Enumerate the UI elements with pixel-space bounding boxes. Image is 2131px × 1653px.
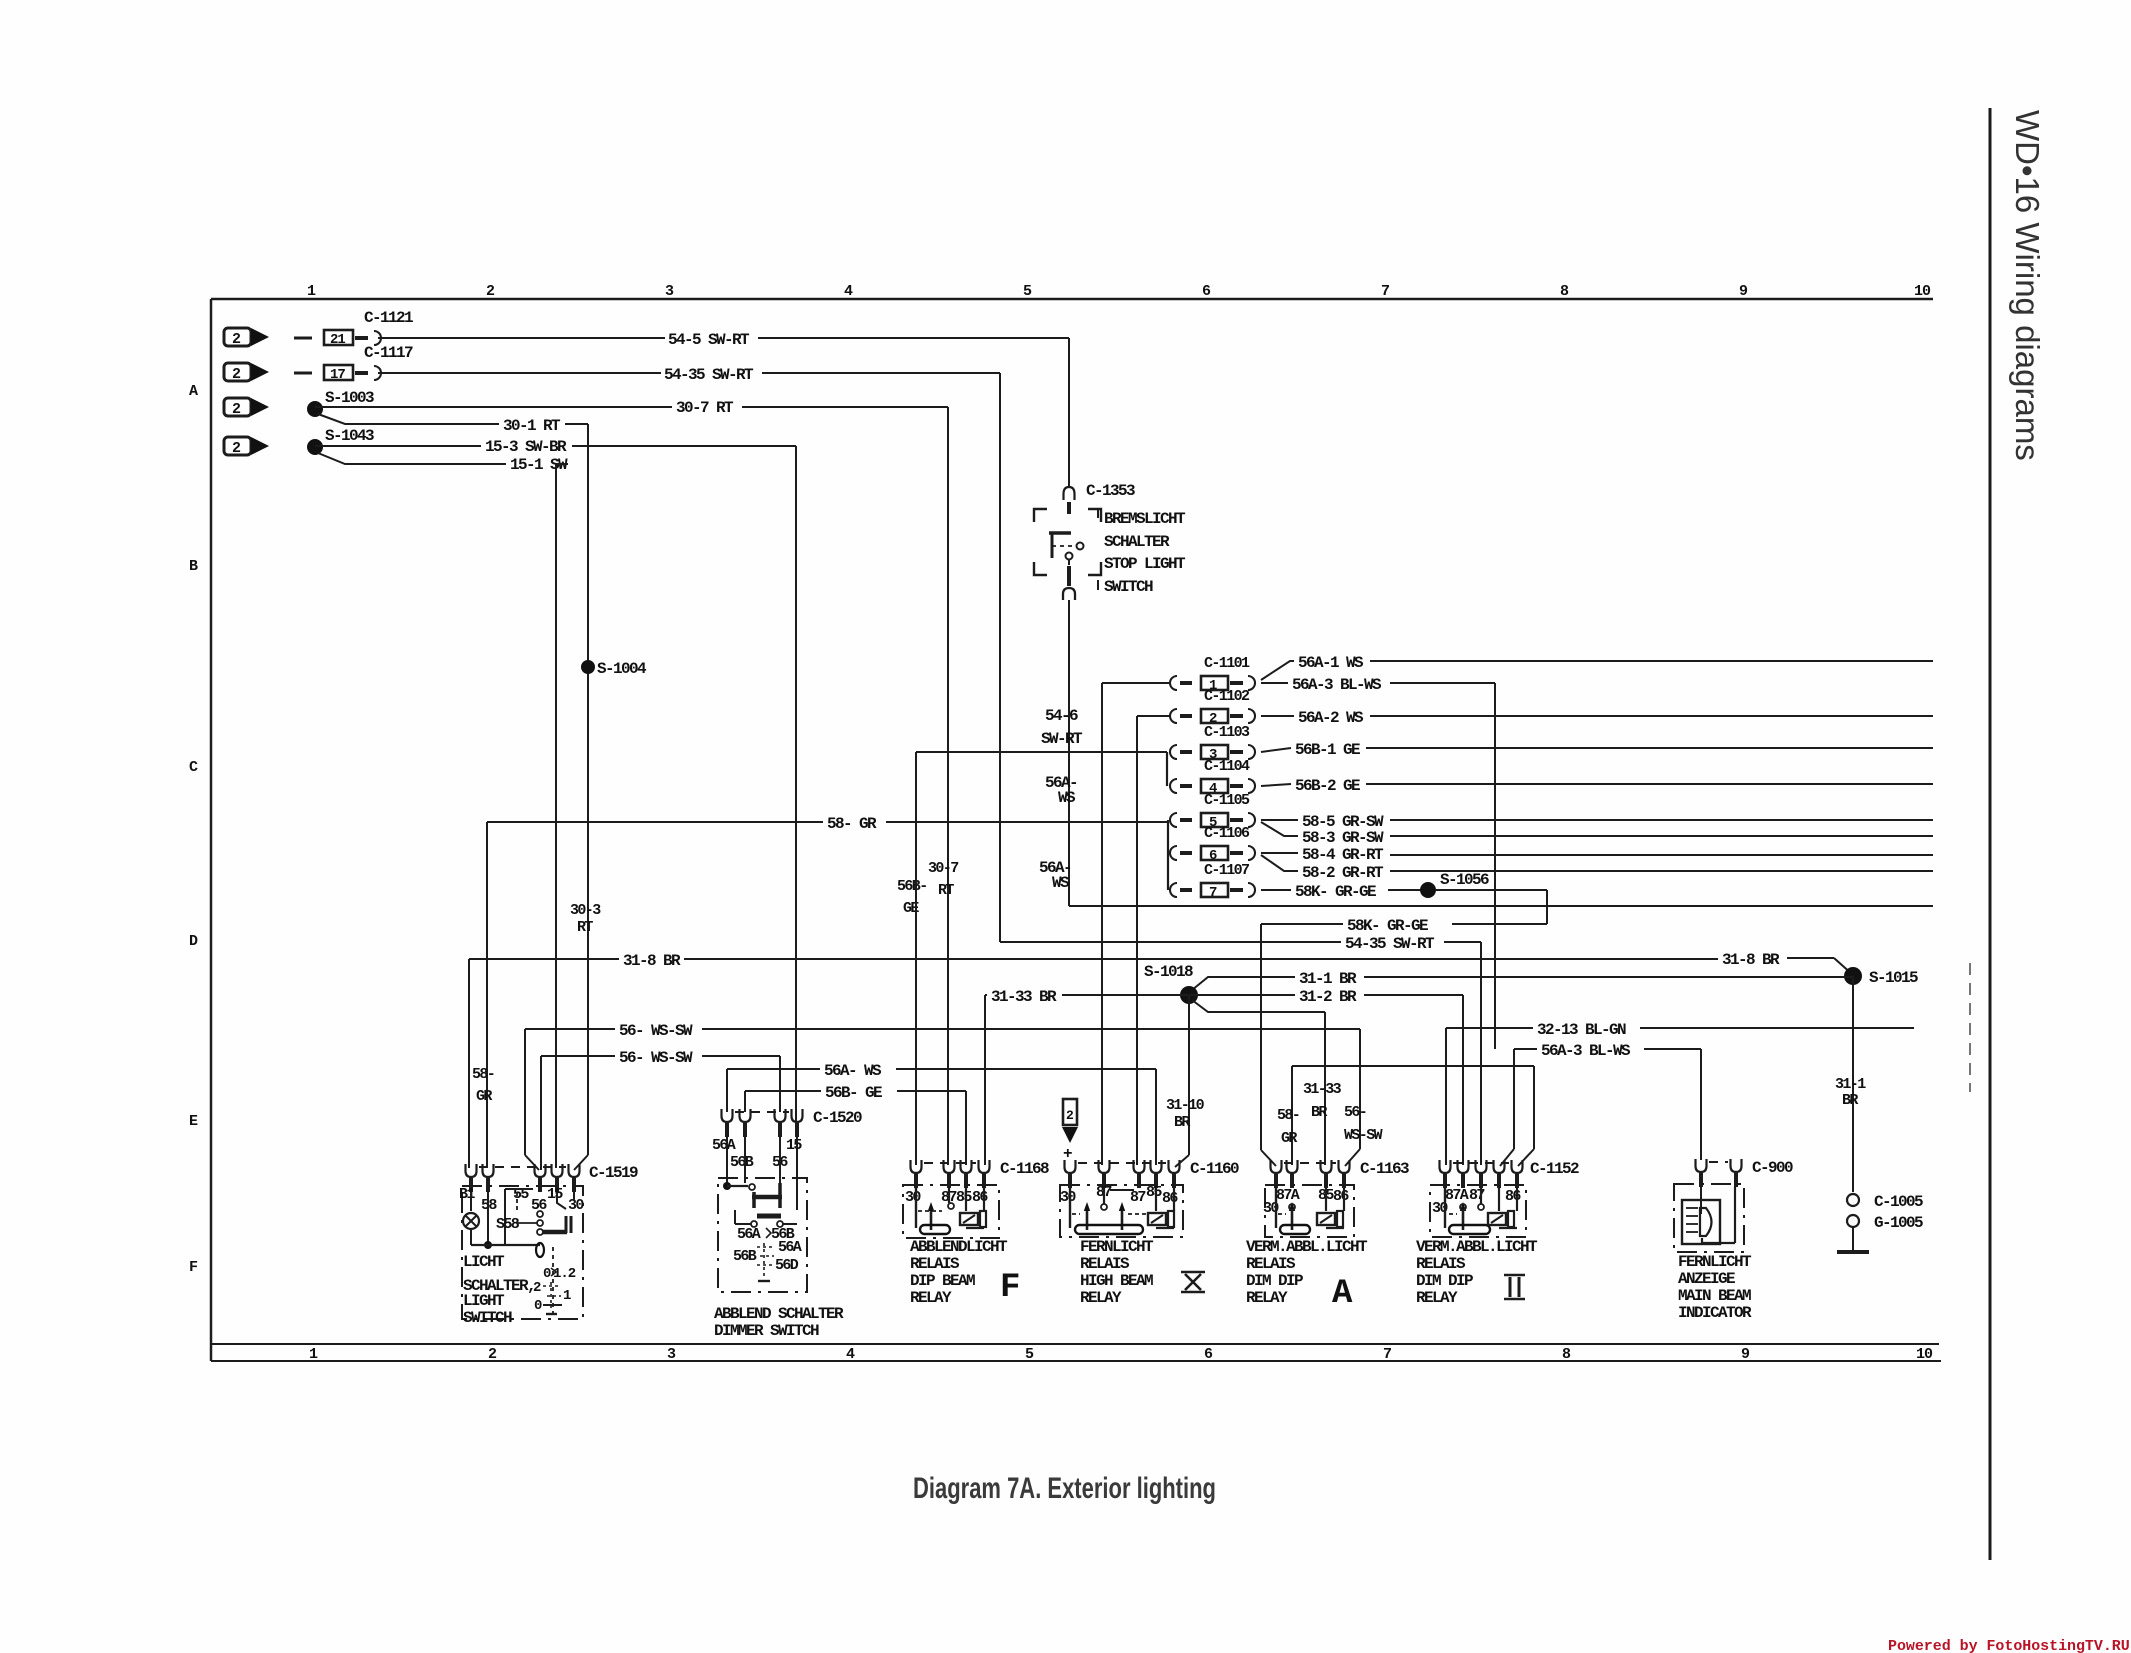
svg-text:31-33 BR: 31-33 BR bbox=[991, 988, 1057, 1006]
svg-text:Powered by FotoHostingTV.RU: Powered by FotoHostingTV.RU bbox=[1888, 1638, 2130, 1653]
svg-text:SWITCH: SWITCH bbox=[1104, 578, 1153, 596]
svg-text:86: 86 bbox=[1505, 1188, 1521, 1205]
svg-text:2: 2 bbox=[486, 283, 495, 300]
svg-text:32-13 BL-GN: 32-13 BL-GN bbox=[1537, 1021, 1626, 1039]
svg-text:ABBLEND SCHALTER: ABBLEND SCHALTER bbox=[714, 1305, 844, 1323]
svg-text:S-1056: S-1056 bbox=[1440, 871, 1489, 889]
svg-text:ANZEIGE: ANZEIGE bbox=[1678, 1270, 1735, 1288]
svg-text:WS-SW: WS-SW bbox=[1344, 1127, 1383, 1144]
svg-text:30-7 RT: 30-7 RT bbox=[676, 399, 734, 417]
svg-text:31-10: 31-10 bbox=[1166, 1097, 1205, 1114]
svg-text:58K- GR-GE: 58K- GR-GE bbox=[1347, 917, 1428, 935]
svg-text:BR: BR bbox=[1311, 1104, 1327, 1121]
svg-text:56B-: 56B- bbox=[897, 878, 927, 895]
svg-text:C-1117: C-1117 bbox=[364, 344, 413, 362]
svg-text:56- WS-SW: 56- WS-SW bbox=[619, 1049, 693, 1067]
svg-text:DIM DIP: DIM DIP bbox=[1246, 1272, 1303, 1290]
svg-text:A: A bbox=[189, 383, 198, 400]
svg-text:C-1005: C-1005 bbox=[1874, 1193, 1923, 1211]
svg-text:RELAY: RELAY bbox=[1416, 1289, 1458, 1307]
svg-text:MAIN BEAM: MAIN BEAM bbox=[1678, 1287, 1751, 1305]
svg-text:SW-RT: SW-RT bbox=[1041, 730, 1083, 748]
svg-text:6: 6 bbox=[1204, 1346, 1213, 1363]
svg-text:8: 8 bbox=[1562, 1346, 1571, 1363]
svg-text:56B-1 GE: 56B-1 GE bbox=[1295, 741, 1360, 759]
svg-text:58- GR: 58- GR bbox=[827, 815, 877, 833]
svg-text:LICHT: LICHT bbox=[463, 1253, 505, 1271]
svg-text:C-1520: C-1520 bbox=[813, 1109, 862, 1127]
svg-text:85: 85 bbox=[956, 1189, 972, 1206]
svg-text:4: 4 bbox=[844, 283, 853, 300]
svg-text:RELAIS: RELAIS bbox=[1246, 1255, 1296, 1273]
svg-text:7: 7 bbox=[1209, 885, 1217, 901]
svg-text:SCHALTER: SCHALTER bbox=[1104, 533, 1170, 551]
svg-text:1: 1 bbox=[563, 1288, 571, 1304]
svg-text:2: 2 bbox=[232, 401, 241, 418]
svg-text:GR: GR bbox=[1281, 1130, 1297, 1147]
svg-text:58K- GR-GE: 58K- GR-GE bbox=[1295, 883, 1376, 901]
svg-text:LIGHT: LIGHT bbox=[463, 1292, 505, 1310]
svg-text:56-: 56- bbox=[1344, 1104, 1366, 1121]
svg-text:31-2 BR: 31-2 BR bbox=[1299, 988, 1357, 1006]
svg-text:31-33: 31-33 bbox=[1303, 1081, 1342, 1098]
svg-text:56B-2 GE: 56B-2 GE bbox=[1295, 777, 1360, 795]
svg-text:VERM.ABBL.LICHT: VERM.ABBL.LICHT bbox=[1246, 1238, 1368, 1256]
svg-text:RT: RT bbox=[938, 882, 954, 899]
svg-text:87A: 87A bbox=[1276, 1187, 1300, 1204]
svg-text:E: E bbox=[189, 1113, 198, 1130]
svg-text:54-5 SW-RT: 54-5 SW-RT bbox=[668, 331, 750, 349]
svg-text:WS: WS bbox=[1052, 874, 1070, 892]
svg-text:C-900: C-900 bbox=[1752, 1159, 1793, 1177]
svg-text:58-2 GR-RT: 58-2 GR-RT bbox=[1302, 864, 1384, 882]
svg-text:58-3 GR-SW: 58-3 GR-SW bbox=[1302, 829, 1384, 847]
svg-text:C-1104: C-1104 bbox=[1204, 758, 1250, 775]
svg-text:1: 1 bbox=[307, 283, 316, 300]
svg-text:GR: GR bbox=[476, 1088, 492, 1105]
svg-text:S58: S58 bbox=[496, 1216, 520, 1233]
svg-text:31-8 BR: 31-8 BR bbox=[1722, 951, 1780, 969]
svg-text:86: 86 bbox=[1162, 1190, 1178, 1207]
svg-text:0: 0 bbox=[543, 1266, 551, 1282]
svg-text:56A: 56A bbox=[778, 1239, 802, 1256]
svg-text:30-1 RT: 30-1 RT bbox=[503, 417, 561, 435]
svg-text:C-1121: C-1121 bbox=[364, 309, 413, 327]
svg-text:STOP LIGHT: STOP LIGHT bbox=[1104, 555, 1186, 573]
svg-text:C-1105: C-1105 bbox=[1204, 792, 1250, 809]
svg-text:31-1 BR: 31-1 BR bbox=[1299, 970, 1357, 988]
svg-text:5: 5 bbox=[1025, 1346, 1034, 1363]
svg-text:C-1168: C-1168 bbox=[1000, 1160, 1049, 1178]
svg-text:56A: 56A bbox=[712, 1137, 736, 1154]
svg-text:C-1101: C-1101 bbox=[1204, 655, 1250, 672]
svg-text:B1: B1 bbox=[459, 1186, 475, 1203]
svg-text:56B- GE: 56B- GE bbox=[825, 1084, 882, 1102]
svg-text:5: 5 bbox=[1023, 283, 1032, 300]
svg-text:8: 8 bbox=[1560, 283, 1569, 300]
svg-text:B: B bbox=[189, 558, 198, 575]
svg-text:56A: 56A bbox=[737, 1226, 761, 1243]
svg-text:58-4 GR-RT: 58-4 GR-RT bbox=[1302, 846, 1384, 864]
svg-text:56B: 56B bbox=[733, 1248, 757, 1265]
svg-text:9: 9 bbox=[1739, 283, 1748, 300]
svg-text:S-1015: S-1015 bbox=[1869, 969, 1918, 987]
svg-text:RELAY: RELAY bbox=[1080, 1289, 1122, 1307]
svg-text:C-1102: C-1102 bbox=[1204, 688, 1250, 705]
svg-text:BR: BR bbox=[1842, 1092, 1858, 1109]
svg-text:FERNLICHT: FERNLICHT bbox=[1678, 1253, 1752, 1271]
svg-text:C-1106: C-1106 bbox=[1204, 825, 1250, 842]
svg-text:1: 1 bbox=[309, 1346, 318, 1363]
svg-text:A: A bbox=[1332, 1275, 1353, 1313]
svg-text:54-35 SW-RT: 54-35 SW-RT bbox=[1345, 935, 1435, 953]
svg-text:FERNLICHT: FERNLICHT bbox=[1080, 1238, 1154, 1256]
svg-text:C: C bbox=[189, 759, 198, 776]
svg-text:56A- WS: 56A- WS bbox=[824, 1062, 882, 1080]
svg-text:RELAIS: RELAIS bbox=[1416, 1255, 1466, 1273]
svg-text:7: 7 bbox=[1381, 283, 1389, 300]
svg-text:87: 87 bbox=[1130, 1189, 1145, 1206]
svg-text:HIGH BEAM: HIGH BEAM bbox=[1080, 1272, 1153, 1290]
svg-text:C-1163: C-1163 bbox=[1360, 1160, 1409, 1178]
svg-text:54-6: 54-6 bbox=[1045, 707, 1078, 725]
svg-text:DIMMER SWITCH: DIMMER SWITCH bbox=[714, 1322, 819, 1340]
svg-text:RELAIS: RELAIS bbox=[910, 1255, 960, 1273]
svg-text:15-3 SW-BR: 15-3 SW-BR bbox=[485, 438, 567, 456]
svg-text:WD•16 Wiring diagrams: WD•16 Wiring diagrams bbox=[2009, 110, 2046, 461]
svg-text:56B: 56B bbox=[730, 1154, 754, 1171]
svg-text:2: 2 bbox=[1066, 1108, 1074, 1123]
svg-text:C-1107: C-1107 bbox=[1204, 862, 1249, 879]
svg-text:56A-2 WS: 56A-2 WS bbox=[1298, 709, 1364, 727]
svg-text:F: F bbox=[1000, 1269, 1020, 1307]
svg-text:INDICATOR: INDICATOR bbox=[1678, 1304, 1752, 1322]
svg-text:C-1519: C-1519 bbox=[589, 1164, 638, 1182]
svg-text:RELAY: RELAY bbox=[910, 1289, 952, 1307]
svg-text:1.2: 1.2 bbox=[553, 1266, 576, 1282]
svg-text:85: 85 bbox=[1146, 1184, 1162, 1201]
svg-text:10: 10 bbox=[1914, 283, 1931, 300]
svg-text:31-8 BR: 31-8 BR bbox=[623, 952, 681, 970]
svg-text:2: 2 bbox=[488, 1346, 497, 1363]
svg-text:4: 4 bbox=[846, 1346, 855, 1363]
svg-text:C-1160: C-1160 bbox=[1190, 1160, 1239, 1178]
svg-text:RT: RT bbox=[577, 919, 593, 936]
svg-text:56- WS-SW: 56- WS-SW bbox=[619, 1022, 693, 1040]
svg-text:S-1004: S-1004 bbox=[597, 660, 647, 678]
svg-text:9: 9 bbox=[1741, 1346, 1750, 1363]
svg-text:30-3: 30-3 bbox=[570, 902, 601, 919]
svg-text:C-1152: C-1152 bbox=[1530, 1160, 1579, 1178]
svg-text:C-1353: C-1353 bbox=[1086, 482, 1135, 500]
svg-text:30-7: 30-7 bbox=[928, 860, 958, 877]
svg-text:56A-3 BL-WS: 56A-3 BL-WS bbox=[1541, 1042, 1631, 1060]
svg-text:3: 3 bbox=[665, 283, 674, 300]
svg-text:DIP BEAM: DIP BEAM bbox=[910, 1272, 975, 1290]
svg-text:58-: 58- bbox=[1277, 1107, 1299, 1124]
svg-text:2: 2 bbox=[232, 440, 241, 457]
svg-text:RELAIS: RELAIS bbox=[1080, 1255, 1130, 1273]
svg-text:86: 86 bbox=[972, 1189, 988, 1206]
svg-text:C-1103: C-1103 bbox=[1204, 724, 1250, 741]
svg-text:56A-1 WS: 56A-1 WS bbox=[1298, 654, 1364, 672]
svg-text:15: 15 bbox=[547, 1186, 563, 1203]
svg-text:56A-3 BL-WS: 56A-3 BL-WS bbox=[1292, 676, 1382, 694]
svg-text:2: 2 bbox=[232, 366, 241, 383]
svg-text:0: 0 bbox=[534, 1298, 542, 1314]
svg-text:17: 17 bbox=[330, 367, 345, 383]
svg-text:56D: 56D bbox=[775, 1257, 799, 1274]
svg-text:30: 30 bbox=[1060, 1189, 1076, 1206]
svg-text:BREMSLICHT: BREMSLICHT bbox=[1104, 510, 1186, 528]
svg-text:31-1: 31-1 bbox=[1835, 1076, 1866, 1093]
svg-text:7: 7 bbox=[1383, 1346, 1391, 1363]
svg-text:15: 15 bbox=[786, 1137, 802, 1154]
svg-text:ABBLENDLICHT: ABBLENDLICHT bbox=[910, 1238, 1008, 1256]
svg-text:S-1003: S-1003 bbox=[325, 389, 374, 407]
svg-text:87A: 87A bbox=[1445, 1187, 1469, 1204]
svg-text:WS: WS bbox=[1058, 789, 1076, 807]
svg-text:58-: 58- bbox=[472, 1066, 494, 1083]
svg-text:3: 3 bbox=[667, 1346, 676, 1363]
svg-text:10: 10 bbox=[1916, 1346, 1933, 1363]
svg-text:S-1018: S-1018 bbox=[1144, 963, 1193, 981]
svg-text:F: F bbox=[189, 1259, 198, 1276]
svg-text:DIM DIP: DIM DIP bbox=[1416, 1272, 1473, 1290]
svg-text:6: 6 bbox=[1202, 283, 1211, 300]
svg-text:RELAY: RELAY bbox=[1246, 1289, 1288, 1307]
svg-text:G-1005: G-1005 bbox=[1874, 1214, 1923, 1232]
svg-text:86: 86 bbox=[1333, 1188, 1349, 1205]
svg-text:58: 58 bbox=[481, 1197, 497, 1214]
svg-text:D: D bbox=[189, 933, 198, 950]
svg-text:Diagram 7A. Exterior lighting: Diagram 7A. Exterior lighting bbox=[913, 1471, 1216, 1505]
svg-text:30: 30 bbox=[568, 1197, 584, 1214]
svg-text:SWITCH: SWITCH bbox=[463, 1309, 512, 1327]
svg-text:2: 2 bbox=[232, 331, 241, 348]
svg-text:54-35 SW-RT: 54-35 SW-RT bbox=[664, 366, 754, 384]
svg-text:S-1043: S-1043 bbox=[325, 427, 374, 445]
svg-text:BR: BR bbox=[1174, 1114, 1190, 1131]
svg-text:30: 30 bbox=[905, 1189, 921, 1206]
svg-text:21: 21 bbox=[330, 332, 345, 348]
svg-text:VERM.ABBL.LICHT: VERM.ABBL.LICHT bbox=[1416, 1238, 1538, 1256]
